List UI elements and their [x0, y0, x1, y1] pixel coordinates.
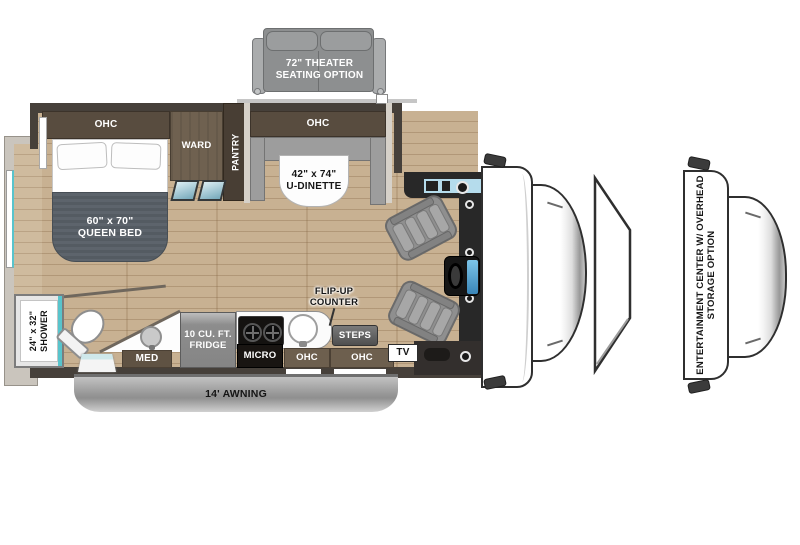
dash-vent	[426, 181, 438, 191]
cup-holder	[465, 200, 474, 209]
theater-seating-option: 72" THEATER SEATING OPTION	[250, 26, 390, 98]
awning-label: 14' AWNING	[74, 388, 398, 400]
dinette-bench-left	[250, 137, 265, 201]
entry-ohc-cabinet: OHC	[330, 348, 394, 368]
bed-blanket: 60" x 70" QUEEN BED	[52, 192, 168, 262]
med-cabinet: MED	[122, 350, 172, 368]
bedroom-ohc-label: OHC	[95, 119, 118, 131]
theater-line1: 72" THEATER	[286, 58, 353, 70]
micro-label: MICRO	[244, 350, 277, 361]
slide-window	[6, 170, 14, 268]
bed-name-label: QUEEN BED	[78, 227, 142, 239]
slide-floor	[14, 144, 42, 306]
hood	[531, 184, 587, 362]
flip-up-line1: FLIP-UP	[315, 286, 353, 297]
hood-crease	[745, 338, 761, 345]
dinette-ohc-label: OHC	[307, 118, 330, 130]
option-hood	[727, 196, 787, 358]
dinette-size-label: 42" x 74"	[292, 169, 337, 181]
tv: TV	[388, 344, 418, 362]
door-speaker	[424, 348, 450, 361]
bedroom-ohc-cabinet: OHC	[42, 111, 170, 139]
wall-left-upper	[30, 111, 38, 149]
theater-seating-label: 72" THEATER SEATING OPTION	[264, 53, 375, 87]
stove	[238, 316, 284, 346]
cab-band-curve	[515, 174, 529, 382]
queen-bed: 60" x 70" QUEEN BED	[52, 139, 168, 262]
option-mirror-bottom	[687, 379, 711, 394]
wall-right-vertical	[394, 111, 402, 173]
sofa-body: 72" THEATER SEATING OPTION	[263, 28, 374, 92]
dinette-bench-right	[370, 137, 386, 205]
entertainment-line1: ENTERTAINMENT CENTER W/ OVERHEAD	[695, 175, 706, 374]
theater-line2: SEATING OPTION	[276, 70, 364, 82]
shower-name-label: SHOWER	[39, 310, 50, 352]
kitchen-sink	[288, 314, 318, 344]
console-screen	[467, 260, 478, 294]
door-cup	[460, 351, 471, 362]
steering-wheel	[448, 263, 463, 289]
center-console	[444, 256, 480, 296]
cab-roof-band	[481, 166, 533, 388]
wardrobe-label: WARD	[182, 140, 212, 151]
stove-burner	[243, 323, 262, 342]
wardrobe: WARD	[170, 111, 223, 181]
flip-up-counter-label: FLIP-UP COUNTER	[302, 284, 366, 310]
steps-label: STEPS	[339, 330, 371, 341]
flip-up-line2: COUNTER	[310, 297, 358, 308]
dinette-slide-wall	[386, 103, 392, 203]
bed-pillow	[111, 142, 162, 170]
dinette-name-label: U-DINETTE	[286, 181, 341, 193]
shower-size-label: 24" x 32"	[28, 311, 39, 351]
dinette-table: 42" x 74" U-DINETTE	[279, 155, 349, 207]
fridge-size-label: 10 CU. FT.	[184, 329, 231, 340]
sofa-back-cushion	[266, 31, 318, 51]
fridge: 10 CU. FT. FRIDGE	[180, 312, 236, 368]
fridge-name-label: FRIDGE	[189, 340, 226, 351]
cab-lower-dark	[414, 341, 482, 375]
kitchen-ohc-cabinet: OHC	[284, 348, 330, 368]
overhead-bunk-outline	[588, 172, 634, 376]
entry-ohc-label: OHC	[351, 352, 373, 363]
hood-crease	[745, 212, 761, 219]
med-label: MED	[136, 353, 159, 365]
entry-step-pad	[78, 354, 116, 372]
bed-pillow	[56, 142, 107, 171]
hood-crease	[547, 202, 563, 209]
entry-steps: STEPS	[332, 325, 378, 346]
hood-crease	[547, 340, 563, 347]
dash-vent	[442, 181, 450, 191]
dash-gauge	[456, 181, 469, 194]
kitchen-ohc-label: OHC	[296, 352, 318, 363]
sofa-foot-left	[254, 88, 261, 95]
sink-faucet	[299, 341, 307, 347]
sofa-back-cushion	[320, 31, 372, 51]
entertainment-option-label: ENTERTAINMENT CENTER W/ OVERHEAD STORAGE…	[685, 170, 727, 380]
rv-floorplan-diagram: 72" THEATER SEATING OPTION OHC 60" x 70"…	[0, 0, 800, 545]
stove-burner	[263, 323, 282, 342]
bedroom-window	[39, 117, 47, 169]
tv-label: TV	[396, 347, 409, 359]
bed-size-label: 60" x 70"	[87, 215, 134, 227]
awning: 14' AWNING	[74, 374, 398, 412]
entertainment-line2: STORAGE OPTION	[706, 231, 717, 320]
shower-label: 24" x 32" SHOWER	[27, 296, 51, 366]
pantry-label: PANTRY	[230, 133, 241, 170]
dash-top	[404, 172, 482, 198]
option-mirror-top	[687, 156, 711, 171]
step-pad-shape	[78, 354, 116, 372]
microwave: MICRO	[237, 344, 283, 368]
dinette-ohc-cabinet: OHC	[250, 111, 386, 137]
